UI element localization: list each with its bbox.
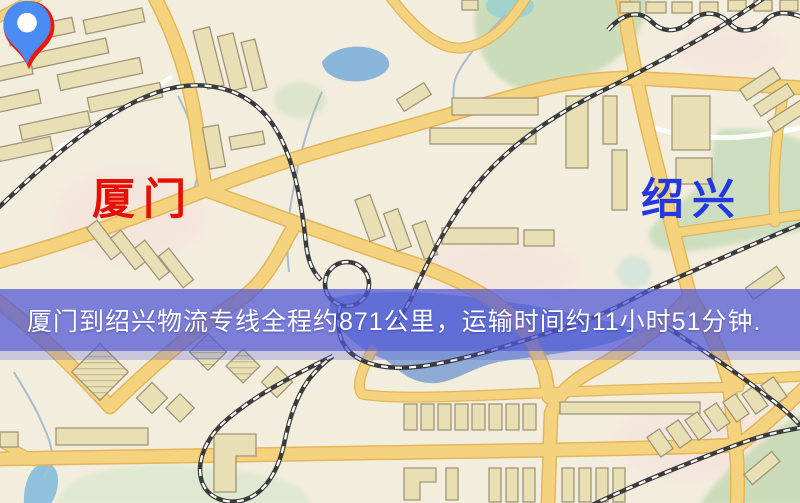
route-info-banner-fade — [0, 351, 800, 360]
origin-city-label: 厦门 — [92, 179, 194, 222]
destination-pin-hole — [17, 13, 37, 33]
route-info-text: 厦门到绍兴物流专线全程约871公里，运输时间约11小时51分钟. — [0, 302, 761, 338]
map-image: 厦门到绍兴物流专线全程约871公里，运输时间约11小时51分钟. 厦门 绍兴 — [0, 0, 800, 503]
map-canvas — [0, 0, 800, 503]
blue-map-pin-icon — [0, 0, 54, 66]
route-info-banner: 厦门到绍兴物流专线全程约871公里，运输时间约11小时51分钟. — [0, 289, 800, 351]
destination-city-label: 绍兴 — [641, 179, 743, 222]
destination-pin-shape — [3, 1, 50, 65]
